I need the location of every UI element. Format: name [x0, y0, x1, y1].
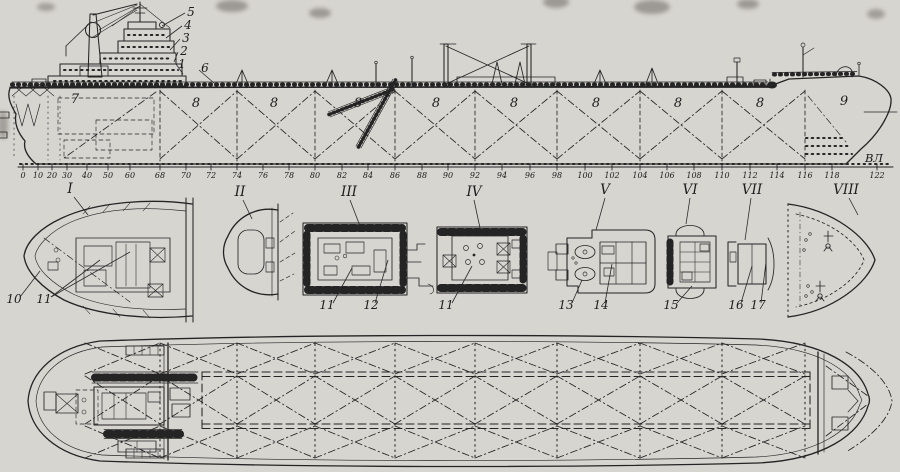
- scanned-ship-drawing-page: 0102030405060687072747678808284868890929…: [0, 0, 900, 472]
- hold-number-label: 8: [674, 96, 682, 111]
- section-callout-label: 17: [750, 298, 766, 312]
- hold-number-label: 7: [71, 92, 80, 107]
- frame-tick-label: 68: [155, 171, 165, 180]
- frame-tick-label: 88: [417, 171, 427, 180]
- section-numeral: I: [66, 181, 73, 197]
- frame-tick-label: 40: [81, 171, 92, 180]
- section-numeral: III: [340, 184, 358, 200]
- frame-tick-label: 74: [232, 171, 242, 180]
- hold-number-label: 8: [432, 96, 440, 111]
- frame-tick-label: 118: [824, 171, 839, 180]
- frame-tick-label: 20: [46, 171, 57, 180]
- frame-tick-label: 90: [443, 171, 453, 180]
- frame-tick-label: 0: [20, 171, 25, 180]
- frame-tick-label: 94: [497, 171, 507, 180]
- section-callout-label: 14: [593, 298, 608, 312]
- waterline-label-group: ВЛ: [864, 151, 883, 165]
- profile-callout-label: 3: [182, 31, 190, 45]
- frame-tick-label: 108: [686, 171, 701, 180]
- frame-tick-label: 80: [310, 171, 320, 180]
- hold-number-label: 8: [354, 96, 362, 111]
- frame-tick-label: 92: [470, 171, 480, 180]
- section-numeral: VIII: [833, 182, 859, 198]
- hold-number-label: 8: [592, 96, 600, 111]
- frame-tick-label: 96: [525, 171, 535, 180]
- hold-number-label: 8: [192, 96, 200, 111]
- frame-tick-label: 82: [337, 171, 347, 180]
- frame-tick-label: 10: [33, 171, 43, 180]
- frame-tick-label: 106: [659, 171, 674, 180]
- frame-tick-label: 50: [103, 171, 113, 180]
- frame-tick-label: 60: [125, 171, 135, 180]
- frame-tick-label: 100: [577, 171, 592, 180]
- frame-tick-label: 104: [632, 171, 647, 180]
- frame-tick-label: 76: [258, 171, 268, 180]
- section-callout-label: 10: [6, 292, 22, 306]
- frame-tick-label: 78: [284, 171, 294, 180]
- section-numeral: V: [600, 182, 611, 198]
- frame-tick-label: 86: [390, 171, 400, 180]
- profile-callout-label: 5: [187, 5, 195, 19]
- frame-tick-label: 72: [206, 171, 216, 180]
- hold-number-label: 9: [840, 94, 848, 109]
- section-callout-label: 11: [438, 298, 453, 312]
- frame-tick-label: 122: [869, 171, 884, 180]
- frame-tick-label: 110: [714, 171, 729, 180]
- frame-tick-label: 84: [363, 171, 373, 180]
- frame-tick-label: 30: [62, 171, 72, 180]
- frame-tick-label: 116: [797, 171, 812, 180]
- profile-callout-label: 2: [179, 44, 188, 58]
- hold-number-label: 8: [270, 96, 278, 111]
- hold-number-label: 8: [756, 96, 764, 111]
- section-numeral: II: [234, 184, 246, 200]
- frame-tick-label: 70: [181, 171, 191, 180]
- section-callout-label: 11: [319, 298, 334, 312]
- ship-general-arrangement-drawing: 0102030405060687072747678808284868890929…: [0, 0, 900, 472]
- section-numeral: IV: [465, 184, 482, 200]
- anchor-icon: [767, 82, 777, 89]
- section-callout-label: 13: [558, 298, 574, 312]
- section-callout-label: 11: [36, 292, 51, 306]
- section-numeral: VII: [742, 182, 763, 198]
- frame-tick-label: 114: [769, 171, 784, 180]
- section-numeral: VI: [682, 182, 698, 198]
- section-callout-label: 12: [363, 298, 378, 312]
- frame-tick-label: 102: [604, 171, 619, 180]
- waterline-label: ВЛ: [864, 151, 883, 165]
- hold-number-label: 8: [510, 96, 518, 111]
- section-callout-label: 15: [663, 298, 678, 312]
- profile-callout-label: 4: [183, 18, 192, 32]
- frame-tick-label: 98: [552, 171, 562, 180]
- frame-tick-label: 112: [742, 171, 757, 180]
